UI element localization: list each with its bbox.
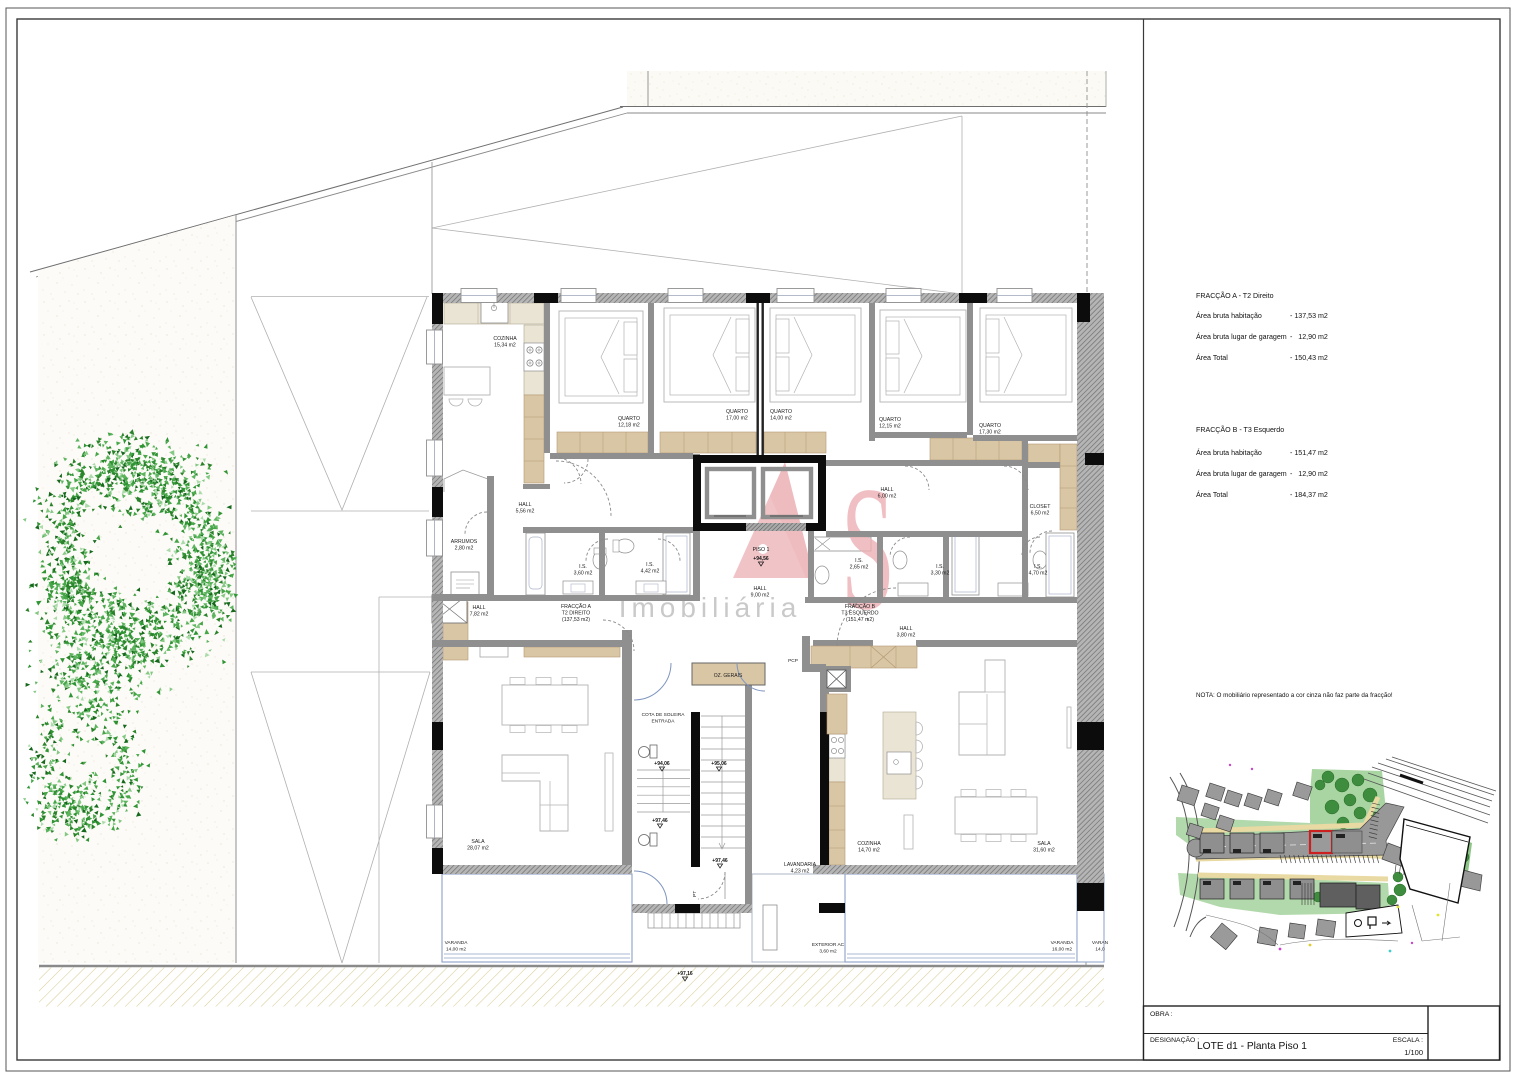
svg-text:14,0: 14,0 bbox=[1095, 946, 1105, 952]
svg-text:+97,46: +97,46 bbox=[712, 858, 728, 864]
svg-text:3,30 m2: 3,30 m2 bbox=[931, 570, 950, 576]
svg-text:HALL: HALL bbox=[754, 586, 767, 592]
svg-text:Área bruta lugar de garagem: Área bruta lugar de garagem bbox=[1196, 469, 1287, 478]
svg-text:Área bruta lugar de garagem: Área bruta lugar de garagem bbox=[1196, 332, 1287, 341]
svg-text:FRACÇÃO A - T2 Direito: FRACÇÃO A - T2 Direito bbox=[1196, 291, 1274, 300]
svg-text:I.S.: I.S. bbox=[1034, 564, 1042, 570]
svg-text:OBRA :: OBRA : bbox=[1150, 1011, 1173, 1018]
svg-text:- 151,47 m2: - 151,47 m2 bbox=[1290, 449, 1328, 457]
svg-text:28,07 m2: 28,07 m2 bbox=[467, 845, 489, 851]
svg-text:6,00 m2: 6,00 m2 bbox=[878, 493, 897, 499]
svg-text:QUARTO: QUARTO bbox=[879, 417, 901, 423]
svg-text:T2 DIREITO: T2 DIREITO bbox=[562, 610, 590, 616]
svg-text:EXTERIOR AC: EXTERIOR AC bbox=[812, 942, 845, 948]
svg-text:+94,56: +94,56 bbox=[753, 556, 769, 562]
svg-text:12,18 m2: 12,18 m2 bbox=[618, 422, 640, 428]
svg-text:14,00 m2: 14,00 m2 bbox=[770, 415, 792, 421]
svg-text:14,00 m2: 14,00 m2 bbox=[446, 946, 466, 952]
svg-text:QUARTO: QUARTO bbox=[618, 416, 640, 422]
svg-text:I.S.: I.S. bbox=[936, 564, 944, 570]
svg-text:HALL: HALL bbox=[900, 626, 913, 632]
svg-text:+94,06: +94,06 bbox=[654, 761, 670, 767]
svg-text:QUARTO: QUARTO bbox=[770, 409, 792, 415]
svg-text:COZINHA: COZINHA bbox=[857, 841, 881, 847]
svg-text:COZINHA: COZINHA bbox=[493, 336, 517, 342]
svg-text:DESIGNAÇÃO :: DESIGNAÇÃO : bbox=[1150, 1035, 1199, 1044]
svg-text:- 12,90 m2: - 12,90 m2 bbox=[1290, 470, 1328, 478]
svg-text:(137,53 m2): (137,53 m2) bbox=[562, 617, 590, 623]
svg-text:COTA DE SOLEIRA: COTA DE SOLEIRA bbox=[642, 712, 686, 718]
svg-text:+97,16: +97,16 bbox=[677, 971, 693, 977]
svg-text:ESCALA :: ESCALA : bbox=[1393, 1037, 1423, 1044]
svg-text:FRACÇÃO B - T3 Esquerdo: FRACÇÃO B - T3 Esquerdo bbox=[1196, 425, 1284, 434]
svg-text:PCP: PCP bbox=[788, 658, 798, 664]
svg-text:FRACÇÃO B: FRACÇÃO B bbox=[845, 603, 876, 610]
svg-text:- 184,37 m2: - 184,37 m2 bbox=[1290, 491, 1328, 499]
svg-text:FRACÇÃO A: FRACÇÃO A bbox=[561, 603, 592, 610]
svg-text:(151,47 m2): (151,47 m2) bbox=[846, 617, 874, 623]
svg-text:3,60 m2: 3,60 m2 bbox=[574, 570, 593, 576]
svg-text:2,80 m2: 2,80 m2 bbox=[455, 545, 474, 551]
svg-text:OZ. GERAIS: OZ. GERAIS bbox=[714, 673, 743, 679]
svg-text:I.S.: I.S. bbox=[579, 564, 587, 570]
svg-text:4,42 m2: 4,42 m2 bbox=[641, 568, 660, 574]
svg-text:PISO 1: PISO 1 bbox=[753, 547, 770, 553]
svg-text:Área bruta habitação: Área bruta habitação bbox=[1196, 448, 1262, 457]
svg-text:- 12,90 m2: - 12,90 m2 bbox=[1290, 333, 1328, 341]
svg-text:PT: PT bbox=[692, 891, 698, 897]
svg-text:LAVANDARIA: LAVANDARIA bbox=[784, 862, 817, 868]
svg-text:2,65 m2: 2,65 m2 bbox=[850, 564, 869, 570]
svg-text:4,23 m2: 4,23 m2 bbox=[791, 868, 810, 874]
svg-text:12,15 m2: 12,15 m2 bbox=[879, 423, 901, 429]
svg-text:5,56 m2: 5,56 m2 bbox=[516, 508, 535, 514]
svg-text:+97,46: +97,46 bbox=[652, 818, 668, 824]
svg-text:4,70 m2: 4,70 m2 bbox=[1029, 570, 1048, 576]
svg-text:Área Total: Área Total bbox=[1196, 353, 1228, 362]
svg-text:NOTA: O mobiliário representa: NOTA: O mobiliário representado a cor ci… bbox=[1196, 692, 1393, 699]
svg-text:HALL: HALL bbox=[881, 487, 894, 493]
svg-text:3,80 m2: 3,80 m2 bbox=[897, 632, 916, 638]
svg-text:3,60 m2: 3,60 m2 bbox=[819, 948, 837, 954]
svg-text:16,00 m2: 16,00 m2 bbox=[1052, 946, 1072, 952]
svg-text:Área Total: Área Total bbox=[1196, 490, 1228, 499]
svg-text:T3 ESQUERDO: T3 ESQUERDO bbox=[841, 610, 878, 616]
svg-text:17,00 m2: 17,00 m2 bbox=[726, 415, 748, 421]
svg-text:15,34 m2: 15,34 m2 bbox=[494, 342, 516, 348]
svg-text:HALL: HALL bbox=[473, 605, 486, 611]
svg-text:HALL: HALL bbox=[519, 502, 532, 508]
svg-text:VARANDA: VARANDA bbox=[445, 940, 469, 946]
svg-text:VARANDA: VARANDA bbox=[1051, 940, 1075, 946]
svg-text:31,60 m2: 31,60 m2 bbox=[1033, 847, 1055, 853]
svg-text:QUARTO: QUARTO bbox=[979, 423, 1001, 429]
svg-text:CLOSET: CLOSET bbox=[1030, 504, 1052, 510]
svg-text:SALA: SALA bbox=[471, 839, 485, 845]
svg-text:17,30 m2: 17,30 m2 bbox=[979, 429, 1001, 435]
svg-text:I.S.: I.S. bbox=[855, 558, 863, 564]
svg-text:SALA: SALA bbox=[1037, 841, 1051, 847]
svg-text:1/100: 1/100 bbox=[1404, 1048, 1423, 1057]
svg-text:ARRUMOS: ARRUMOS bbox=[451, 539, 478, 545]
svg-text:6,50 m2: 6,50 m2 bbox=[1031, 510, 1050, 516]
svg-text:- 137,53 m2: - 137,53 m2 bbox=[1290, 312, 1328, 320]
svg-text:7,82 m2: 7,82 m2 bbox=[470, 611, 489, 617]
svg-text:+95,06: +95,06 bbox=[711, 761, 727, 767]
svg-text:LOTE d1 - Planta Piso 1: LOTE d1 - Planta Piso 1 bbox=[1197, 1041, 1307, 1052]
svg-text:ENTRADA: ENTRADA bbox=[652, 718, 676, 724]
svg-text:I.S.: I.S. bbox=[646, 562, 654, 568]
svg-text:9,00 m2: 9,00 m2 bbox=[751, 592, 770, 598]
svg-text:Área bruta habitação: Área bruta habitação bbox=[1196, 311, 1262, 320]
svg-text:VARAN: VARAN bbox=[1092, 940, 1109, 946]
svg-text:14,70 m2: 14,70 m2 bbox=[858, 847, 880, 853]
svg-text:- 150,43 m2: - 150,43 m2 bbox=[1290, 354, 1328, 362]
svg-text:QUARTO: QUARTO bbox=[726, 409, 748, 415]
